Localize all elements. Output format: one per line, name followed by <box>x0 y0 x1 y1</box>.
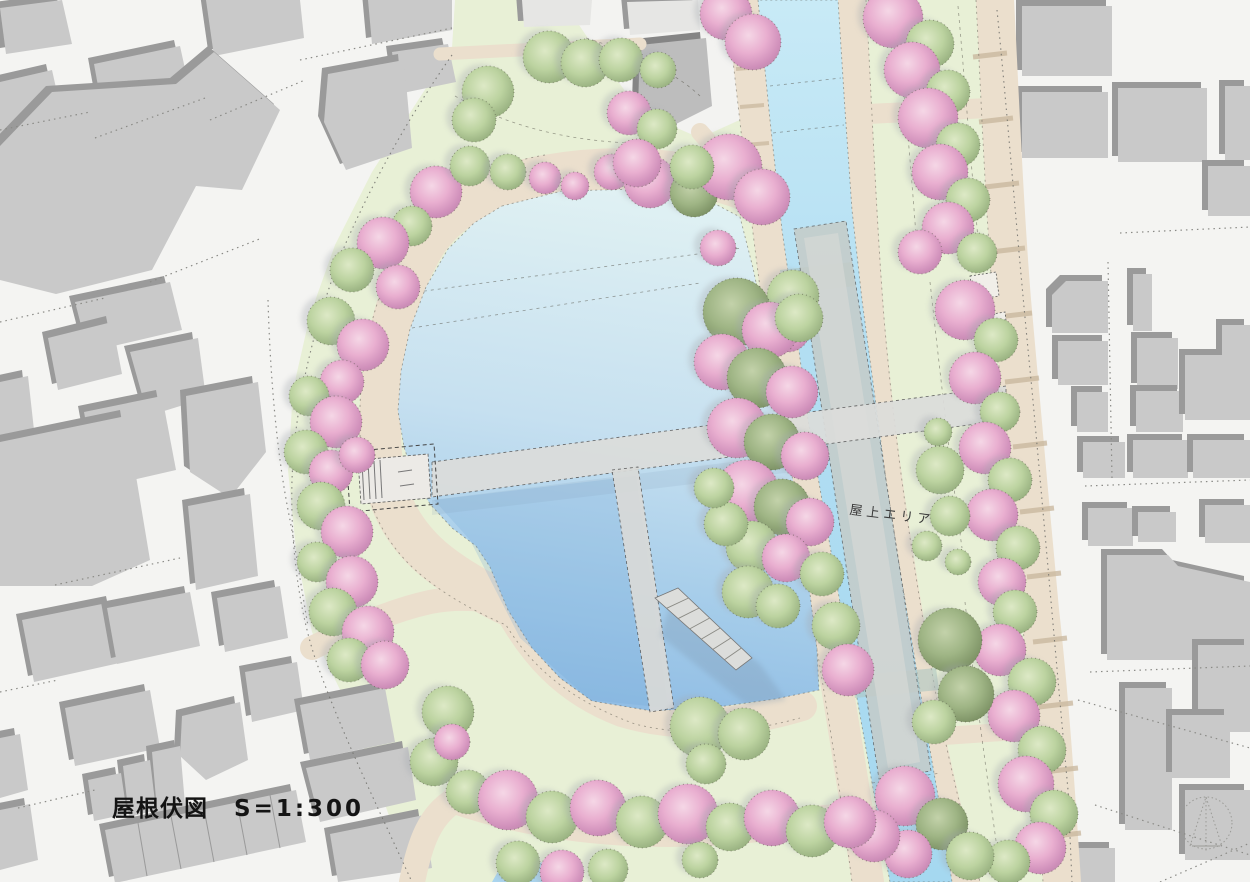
tree-cherry <box>898 230 942 274</box>
tree-green <box>912 700 956 744</box>
tree-green <box>682 842 718 878</box>
tree-green <box>957 233 997 273</box>
building-east <box>1058 341 1108 385</box>
building-west <box>188 494 258 590</box>
tree-cherry <box>766 366 818 418</box>
tree-green <box>945 549 971 575</box>
tree-cherry <box>824 796 876 848</box>
street-dotted-line <box>1085 480 1250 486</box>
tree-cherry <box>725 14 781 70</box>
building-plaza <box>522 0 592 27</box>
building-east <box>1022 6 1112 76</box>
tree-cherry <box>781 432 829 480</box>
tree-green <box>718 708 770 760</box>
building-east <box>1136 391 1183 432</box>
tree-green <box>918 608 982 672</box>
building-east <box>1077 392 1108 432</box>
building-east <box>1208 166 1250 216</box>
building-west <box>88 773 127 821</box>
tree-green <box>812 602 860 650</box>
building-west <box>186 382 266 498</box>
building-west <box>0 734 28 798</box>
site-plan-canvas: 屋根伏図S=1:300 屋上エリア <box>0 0 1250 882</box>
street-dotted-line <box>0 680 58 692</box>
building-plaza <box>627 0 700 35</box>
tree-green <box>704 502 748 546</box>
site-plan-drawing <box>0 0 1250 882</box>
building-east <box>1083 442 1125 478</box>
street-dotted-line <box>150 238 262 282</box>
tree-cherry <box>700 230 736 266</box>
building-east <box>1118 88 1207 162</box>
building-east <box>1088 508 1133 546</box>
tree-green <box>912 531 942 561</box>
building-east <box>1133 440 1188 478</box>
building-east <box>1225 86 1250 160</box>
tree-cherry <box>361 641 409 689</box>
tree-green <box>694 468 734 508</box>
street-dotted-line <box>1120 227 1250 233</box>
tree-green <box>490 154 526 190</box>
tree-green <box>924 418 952 446</box>
tree-green <box>756 584 800 628</box>
tree-cherry <box>734 169 790 225</box>
tree-green <box>450 146 490 186</box>
building-east <box>1125 688 1172 830</box>
tree-cherry <box>561 172 589 200</box>
tree-green <box>800 552 844 596</box>
tree-green <box>330 248 374 292</box>
tree-cherry <box>822 644 874 696</box>
building-west <box>206 0 304 56</box>
building-east <box>1172 715 1230 778</box>
tree-green <box>775 294 823 342</box>
building-east <box>1133 274 1152 331</box>
building-east <box>1052 281 1108 333</box>
paving-tick <box>740 105 764 107</box>
building-west <box>0 416 150 586</box>
building-east <box>1137 338 1178 389</box>
tree-cherry <box>339 437 375 473</box>
tree-green <box>640 52 676 88</box>
tree-green <box>930 496 970 536</box>
building-west <box>245 662 304 722</box>
tree-green <box>916 446 964 494</box>
building-east <box>1185 790 1250 860</box>
tree-green <box>452 98 496 142</box>
building-east <box>1138 512 1176 542</box>
building-east <box>1193 440 1250 478</box>
tree-cherry <box>376 265 420 309</box>
building-west <box>0 804 38 870</box>
tree-cherry <box>613 139 661 187</box>
building-east <box>1205 505 1250 543</box>
building-east <box>1022 92 1108 158</box>
building-west <box>0 0 72 54</box>
building-west <box>368 0 452 44</box>
tree-green <box>946 832 994 880</box>
tree-cherry <box>434 724 470 760</box>
tree-green <box>670 145 714 189</box>
tree-green <box>686 744 726 784</box>
street-dotted-line <box>18 790 95 808</box>
